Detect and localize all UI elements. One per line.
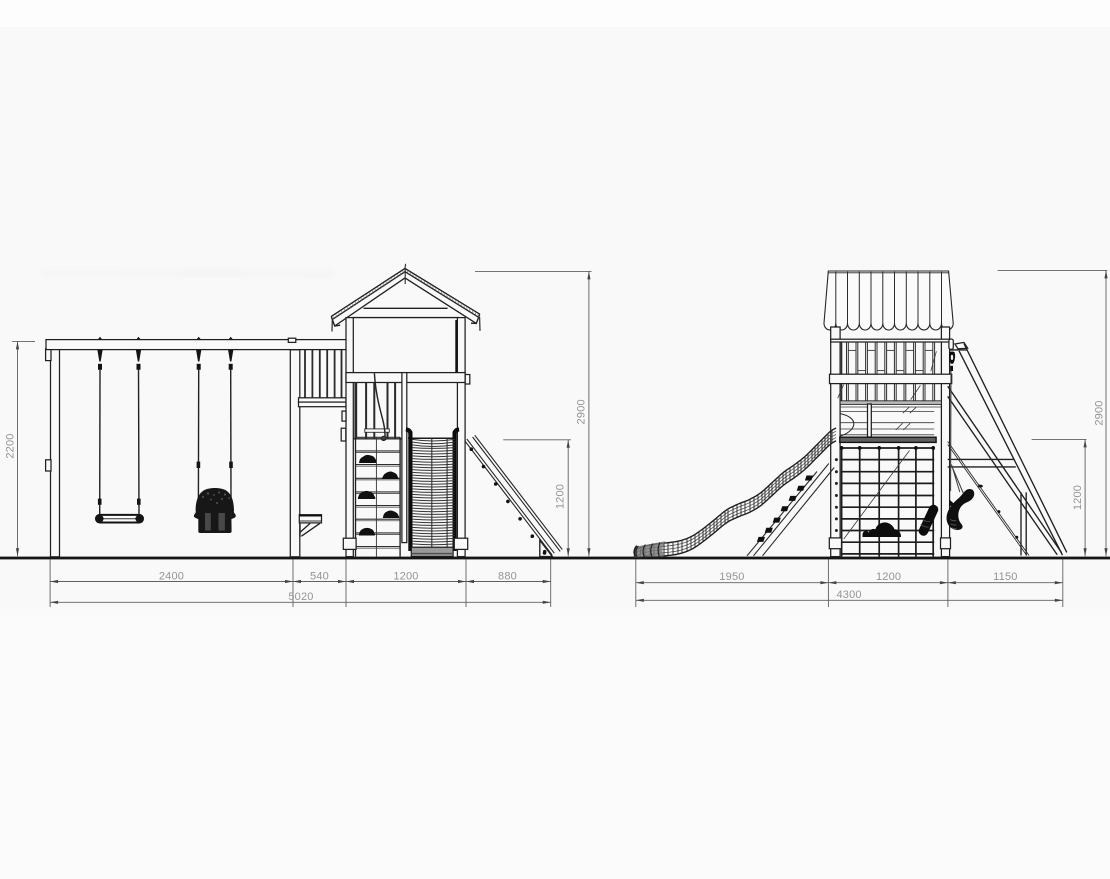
svg-text:1200: 1200 <box>876 571 901 583</box>
svg-text:1150: 1150 <box>993 571 1017 583</box>
svg-text:2900: 2900 <box>575 399 587 424</box>
svg-text:540: 540 <box>310 570 329 582</box>
svg-text:1200: 1200 <box>555 484 567 509</box>
svg-text:1200: 1200 <box>1072 485 1084 510</box>
svg-text:4300: 4300 <box>836 589 861 601</box>
svg-text:2200: 2200 <box>4 433 16 458</box>
svg-text:2400: 2400 <box>159 570 184 582</box>
svg-text:880: 880 <box>498 570 517 582</box>
svg-text:5020: 5020 <box>288 591 313 603</box>
svg-text:1950: 1950 <box>719 571 744 583</box>
svg-text:2900: 2900 <box>1093 400 1105 425</box>
svg-text:1200: 1200 <box>393 570 418 582</box>
